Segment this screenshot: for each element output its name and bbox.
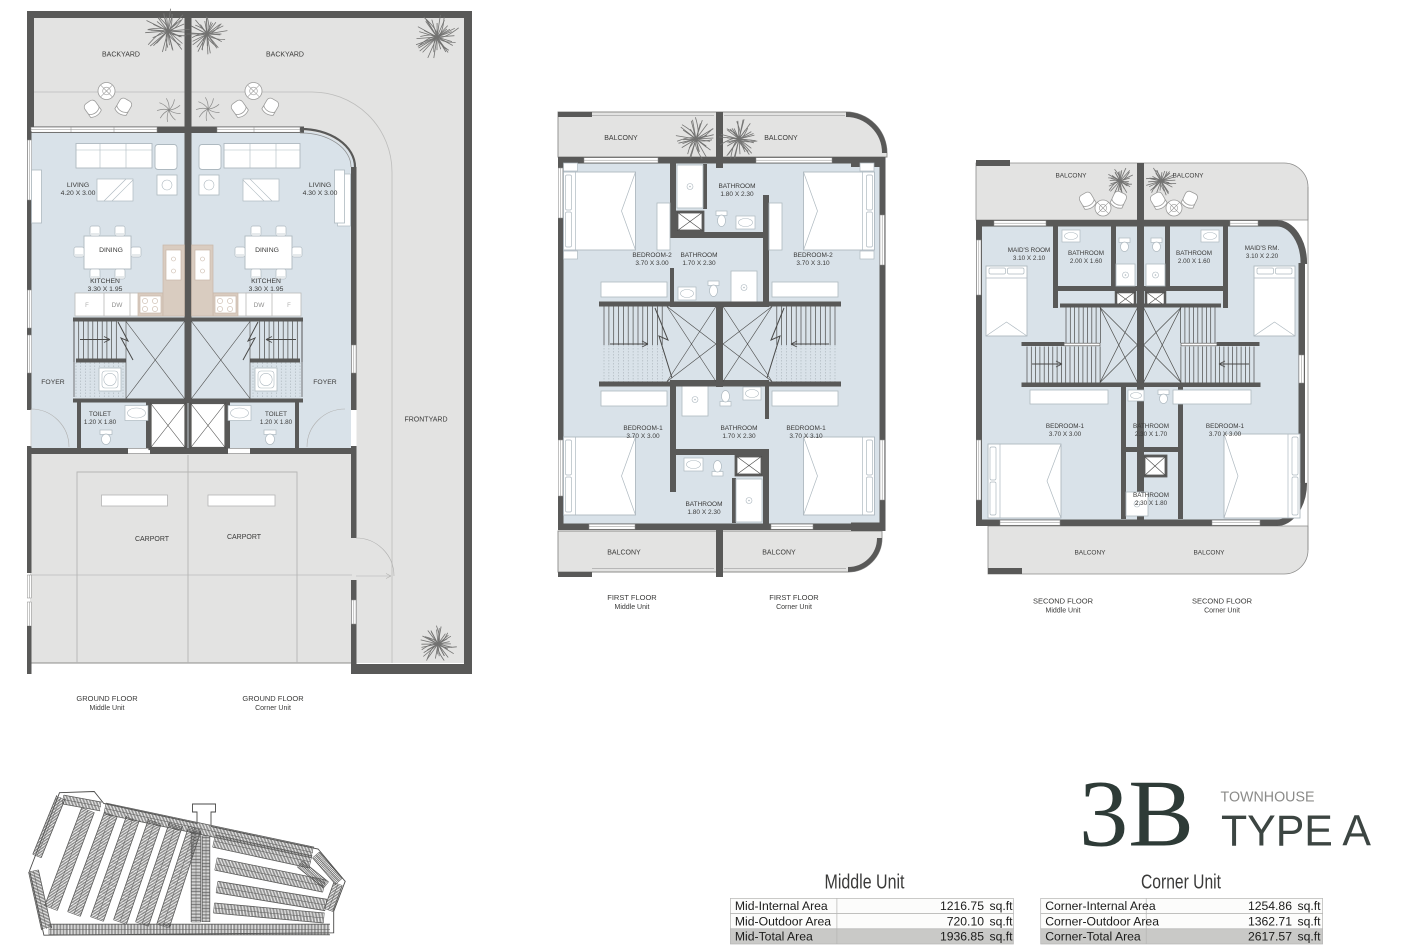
svg-text:Corner-Total Area: Corner-Total Area bbox=[1045, 930, 1141, 944]
svg-text:BEDROOM-2: BEDROOM-2 bbox=[632, 252, 672, 259]
svg-text:TOWNHOUSE: TOWNHOUSE bbox=[1221, 790, 1315, 806]
svg-text:3.30 X 1.95: 3.30 X 1.95 bbox=[249, 286, 284, 293]
svg-text:TYPE A: TYPE A bbox=[1221, 807, 1372, 856]
svg-text:Corner Unit: Corner Unit bbox=[1204, 608, 1240, 615]
svg-text:BALCONY: BALCONY bbox=[764, 135, 798, 142]
svg-text:Corner Unit: Corner Unit bbox=[776, 604, 812, 611]
svg-text:BEDROOM-1: BEDROOM-1 bbox=[1046, 423, 1085, 430]
svg-text:2.00 X 1.60: 2.00 X 1.60 bbox=[1070, 258, 1103, 265]
svg-text:DW: DW bbox=[254, 302, 266, 309]
svg-text:2.30 X 1.70: 2.30 X 1.70 bbox=[1135, 431, 1168, 438]
svg-text:BALCONY: BALCONY bbox=[607, 550, 641, 557]
svg-text:BATHROOM: BATHROOM bbox=[685, 501, 722, 508]
svg-text:BALCONY: BALCONY bbox=[1172, 173, 1204, 180]
svg-text:sq.ft: sq.ft bbox=[1298, 914, 1322, 928]
svg-text:BEDROOM-1: BEDROOM-1 bbox=[1206, 423, 1245, 430]
svg-text:sq.ft: sq.ft bbox=[1298, 930, 1322, 944]
svg-text:sq.ft: sq.ft bbox=[1298, 899, 1322, 913]
svg-text:SECOND FLOOR: SECOND FLOOR bbox=[1033, 597, 1094, 606]
svg-text:Middle Unit: Middle Unit bbox=[825, 872, 905, 894]
svg-text:2617.57: 2617.57 bbox=[1248, 930, 1292, 944]
svg-text:BALCONY: BALCONY bbox=[762, 550, 796, 557]
svg-text:MAID'S RM.: MAID'S RM. bbox=[1245, 245, 1280, 252]
svg-text:1.80 X 2.30: 1.80 X 2.30 bbox=[720, 191, 754, 198]
svg-text:Middle Unit: Middle Unit bbox=[614, 604, 649, 611]
svg-text:BATHROOM: BATHROOM bbox=[1133, 492, 1169, 499]
svg-text:Corner Unit: Corner Unit bbox=[1141, 872, 1221, 894]
svg-text:Mid-Total Area: Mid-Total Area bbox=[735, 930, 813, 944]
svg-text:FIRST FLOOR: FIRST FLOOR bbox=[769, 593, 819, 602]
svg-text:1.70 X 2.30: 1.70 X 2.30 bbox=[722, 433, 756, 440]
svg-text:BEDROOM-1: BEDROOM-1 bbox=[786, 425, 826, 432]
svg-text:LIVING: LIVING bbox=[309, 182, 331, 189]
svg-text:KITCHEN: KITCHEN bbox=[251, 278, 281, 285]
svg-text:1.80 X 2.30: 1.80 X 2.30 bbox=[687, 509, 721, 516]
svg-text:sq.ft: sq.ft bbox=[990, 930, 1014, 944]
svg-text:BATHROOM: BATHROOM bbox=[680, 252, 717, 259]
svg-text:BALCONY: BALCONY bbox=[604, 135, 638, 142]
svg-text:BATHROOM: BATHROOM bbox=[718, 183, 755, 190]
svg-text:1.70 X 2.30: 1.70 X 2.30 bbox=[682, 260, 716, 267]
svg-text:MAID'S ROOM: MAID'S ROOM bbox=[1008, 247, 1050, 254]
svg-text:BEDROOM-2: BEDROOM-2 bbox=[793, 252, 833, 259]
svg-text:CARPORT: CARPORT bbox=[135, 536, 170, 543]
svg-text:LIVING: LIVING bbox=[67, 182, 89, 189]
svg-text:Middle Unit: Middle Unit bbox=[89, 705, 124, 712]
svg-text:F: F bbox=[287, 303, 291, 309]
svg-text:3.70 X 3.00: 3.70 X 3.00 bbox=[635, 260, 669, 267]
svg-text:1936.85: 1936.85 bbox=[940, 930, 984, 944]
svg-text:sq.ft: sq.ft bbox=[990, 899, 1014, 913]
svg-text:TOILET: TOILET bbox=[265, 411, 287, 418]
svg-text:1362.71: 1362.71 bbox=[1248, 914, 1292, 928]
svg-text:CARPORT: CARPORT bbox=[227, 534, 262, 541]
svg-text:BALCONY: BALCONY bbox=[1074, 550, 1106, 557]
svg-text:1254.86: 1254.86 bbox=[1248, 899, 1292, 913]
svg-text:GROUND FLOOR: GROUND FLOOR bbox=[242, 694, 304, 703]
svg-text:Corner-Internal Area: Corner-Internal Area bbox=[1045, 899, 1156, 913]
svg-text:GROUND FLOOR: GROUND FLOOR bbox=[76, 694, 138, 703]
svg-text:1.20 X 1.80: 1.20 X 1.80 bbox=[84, 419, 117, 426]
svg-text:sq.ft: sq.ft bbox=[990, 914, 1014, 928]
svg-text:3B: 3B bbox=[1079, 761, 1194, 867]
svg-text:Middle Unit: Middle Unit bbox=[1045, 608, 1080, 615]
svg-text:FIRST FLOOR: FIRST FLOOR bbox=[607, 593, 657, 602]
svg-text:3.10 X 2.10: 3.10 X 2.10 bbox=[1013, 255, 1046, 262]
svg-text:720.10: 720.10 bbox=[947, 914, 984, 928]
svg-text:SECOND FLOOR: SECOND FLOOR bbox=[1192, 597, 1253, 606]
svg-text:FOYER: FOYER bbox=[41, 379, 65, 386]
svg-text:Corner-Outdoor Area: Corner-Outdoor Area bbox=[1045, 914, 1159, 928]
svg-text:Corner Unit: Corner Unit bbox=[255, 705, 291, 712]
svg-text:BEDROOM-1: BEDROOM-1 bbox=[623, 425, 663, 432]
svg-text:1216.75: 1216.75 bbox=[940, 899, 984, 913]
svg-text:BATHROOM: BATHROOM bbox=[1068, 250, 1104, 257]
svg-text:F: F bbox=[85, 303, 89, 309]
svg-text:BACKYARD: BACKYARD bbox=[102, 52, 140, 59]
svg-text:3.70 X 3.10: 3.70 X 3.10 bbox=[789, 433, 823, 440]
svg-text:DINING: DINING bbox=[99, 247, 123, 254]
svg-text:DINING: DINING bbox=[255, 247, 279, 254]
svg-text:1.20 X 1.80: 1.20 X 1.80 bbox=[260, 419, 293, 426]
svg-text:4.30 X 3.00: 4.30 X 3.00 bbox=[303, 190, 338, 197]
svg-text:2.30 X 1.80: 2.30 X 1.80 bbox=[1135, 500, 1168, 507]
svg-text:BATHROOM: BATHROOM bbox=[1176, 250, 1212, 257]
svg-text:3.70 X 3.00: 3.70 X 3.00 bbox=[1049, 431, 1082, 438]
svg-text:DW: DW bbox=[112, 302, 124, 309]
svg-text:FRONTYARD: FRONTYARD bbox=[404, 417, 447, 424]
svg-text:BALCONY: BALCONY bbox=[1193, 550, 1225, 557]
svg-text:BATHROOM: BATHROOM bbox=[1133, 423, 1169, 430]
svg-text:3.10 X 2.20: 3.10 X 2.20 bbox=[1246, 253, 1279, 260]
svg-text:3.30 X 1.95: 3.30 X 1.95 bbox=[88, 286, 123, 293]
svg-text:Mid-Internal Area: Mid-Internal Area bbox=[735, 899, 828, 913]
svg-text:2.00 X 1.60: 2.00 X 1.60 bbox=[1178, 258, 1211, 265]
svg-text:FOYER: FOYER bbox=[313, 379, 337, 386]
svg-text:BATHROOM: BATHROOM bbox=[720, 425, 757, 432]
svg-text:KITCHEN: KITCHEN bbox=[90, 278, 120, 285]
svg-text:4.20 X 3.00: 4.20 X 3.00 bbox=[61, 190, 96, 197]
svg-text:TOILET: TOILET bbox=[89, 411, 111, 418]
svg-text:3.70 X 3.00: 3.70 X 3.00 bbox=[626, 433, 660, 440]
svg-text:Mid-Outdoor Area: Mid-Outdoor Area bbox=[735, 914, 831, 928]
svg-text:BACKYARD: BACKYARD bbox=[266, 52, 304, 59]
svg-text:BALCONY: BALCONY bbox=[1055, 173, 1087, 180]
svg-text:3.70 X 3.00: 3.70 X 3.00 bbox=[1209, 431, 1242, 438]
svg-text:3.70 X 3.10: 3.70 X 3.10 bbox=[796, 260, 830, 267]
